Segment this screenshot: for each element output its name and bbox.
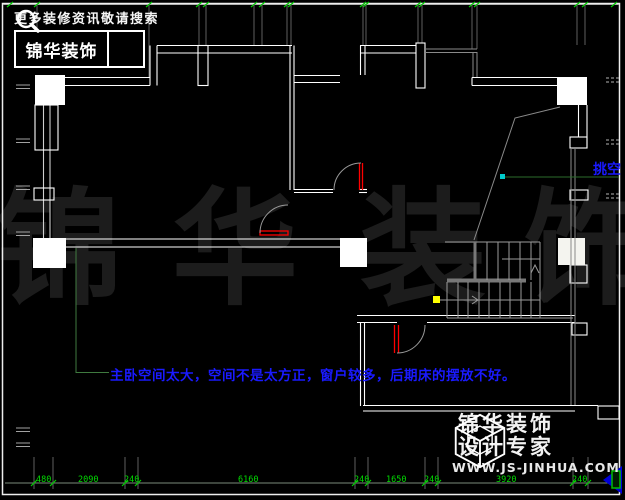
- door-2: [334, 163, 363, 190]
- walls: [34, 43, 619, 419]
- brand-footer-block: 锦华装饰 设计专家 WWW.JS-JINHUA.COM: [452, 412, 624, 475]
- dimension-value: 240: [354, 475, 369, 485]
- dimension-value: 240: [124, 475, 139, 485]
- right-dimension-ticks: [606, 78, 620, 198]
- void-diagonal-line: [474, 107, 560, 240]
- walls-gray: [425, 49, 575, 405]
- dimension-value: 240: [424, 475, 439, 485]
- door-1: [260, 205, 288, 235]
- note-leader-line: [76, 248, 109, 373]
- yellow-marker: [433, 296, 440, 303]
- stairs: [435, 242, 573, 318]
- dimension-value: 1650: [386, 475, 406, 485]
- dimension-value: 240: [572, 475, 587, 485]
- dimension-value: 3920: [496, 475, 516, 485]
- left-dimension-ticks: [16, 85, 30, 447]
- brand-search-block: 更多装修资讯敬请搜索 锦华装饰: [14, 8, 159, 68]
- door-3: [395, 325, 426, 353]
- brand-search-box: 锦华装饰: [14, 30, 145, 68]
- dimension-value: 2090: [78, 475, 98, 485]
- designer-note: 主卧空间太大，空间不是太方正，窗户较多，后期床的摆放不好。: [110, 364, 510, 384]
- cyan-marker: [500, 174, 505, 179]
- brand-name: 锦华装饰: [16, 32, 107, 66]
- dimension-value: 480: [36, 475, 51, 485]
- void-label: 挑空: [593, 159, 621, 179]
- search-icon: [109, 32, 143, 66]
- dimension-value: 6160: [238, 475, 258, 485]
- stairs-up-arrow: [531, 265, 539, 273]
- cad-floorplan-sheet: 锦 华 装 饰: [0, 0, 625, 500]
